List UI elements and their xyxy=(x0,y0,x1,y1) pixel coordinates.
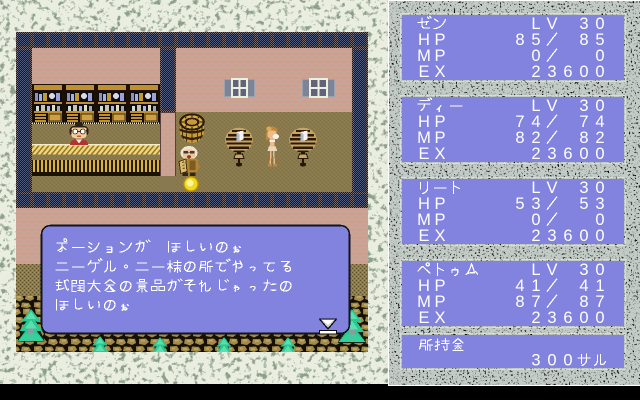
svg-text:X: X xyxy=(434,309,445,327)
svg-text:2: 2 xyxy=(531,227,540,245)
svg-text:8: 8 xyxy=(515,129,524,147)
svg-text:0: 0 xyxy=(579,309,588,327)
svg-text:2: 2 xyxy=(531,309,540,327)
svg-text:5: 5 xyxy=(515,195,524,213)
svg-text:X: X xyxy=(434,227,445,245)
svg-text:6: 6 xyxy=(563,309,572,327)
svg-text:X: X xyxy=(434,145,445,163)
svg-text:8: 8 xyxy=(515,293,524,311)
svg-text:V: V xyxy=(546,97,557,115)
svg-text:0: 0 xyxy=(579,227,588,245)
svg-text:6: 6 xyxy=(563,145,572,163)
svg-text:2: 2 xyxy=(531,145,540,163)
svg-text:0: 0 xyxy=(563,352,572,370)
svg-text:5: 5 xyxy=(579,195,588,213)
svg-text:V: V xyxy=(546,179,557,197)
svg-text:3: 3 xyxy=(547,145,556,163)
svg-text:0: 0 xyxy=(595,309,604,327)
svg-text:0: 0 xyxy=(595,145,604,163)
svg-text:8: 8 xyxy=(515,31,524,49)
svg-text:E: E xyxy=(418,309,429,327)
svg-text:0: 0 xyxy=(595,63,604,81)
svg-text:3: 3 xyxy=(547,227,556,245)
svg-text:0: 0 xyxy=(595,227,604,245)
svg-text:E: E xyxy=(418,227,429,245)
svg-text:V: V xyxy=(546,261,557,279)
svg-text:6: 6 xyxy=(563,63,572,81)
svg-text:E: E xyxy=(418,145,429,163)
svg-text:3: 3 xyxy=(547,309,556,327)
svg-text:2: 2 xyxy=(531,63,540,81)
svg-text:6: 6 xyxy=(563,227,572,245)
svg-text:0: 0 xyxy=(579,145,588,163)
svg-text:0: 0 xyxy=(547,352,556,370)
svg-text:X: X xyxy=(434,63,445,81)
svg-text:E: E xyxy=(418,63,429,81)
svg-text:3: 3 xyxy=(531,352,540,370)
svg-text:8: 8 xyxy=(579,31,588,49)
svg-text:V: V xyxy=(546,15,557,33)
svg-text:0: 0 xyxy=(579,63,588,81)
svg-text:3: 3 xyxy=(547,63,556,81)
